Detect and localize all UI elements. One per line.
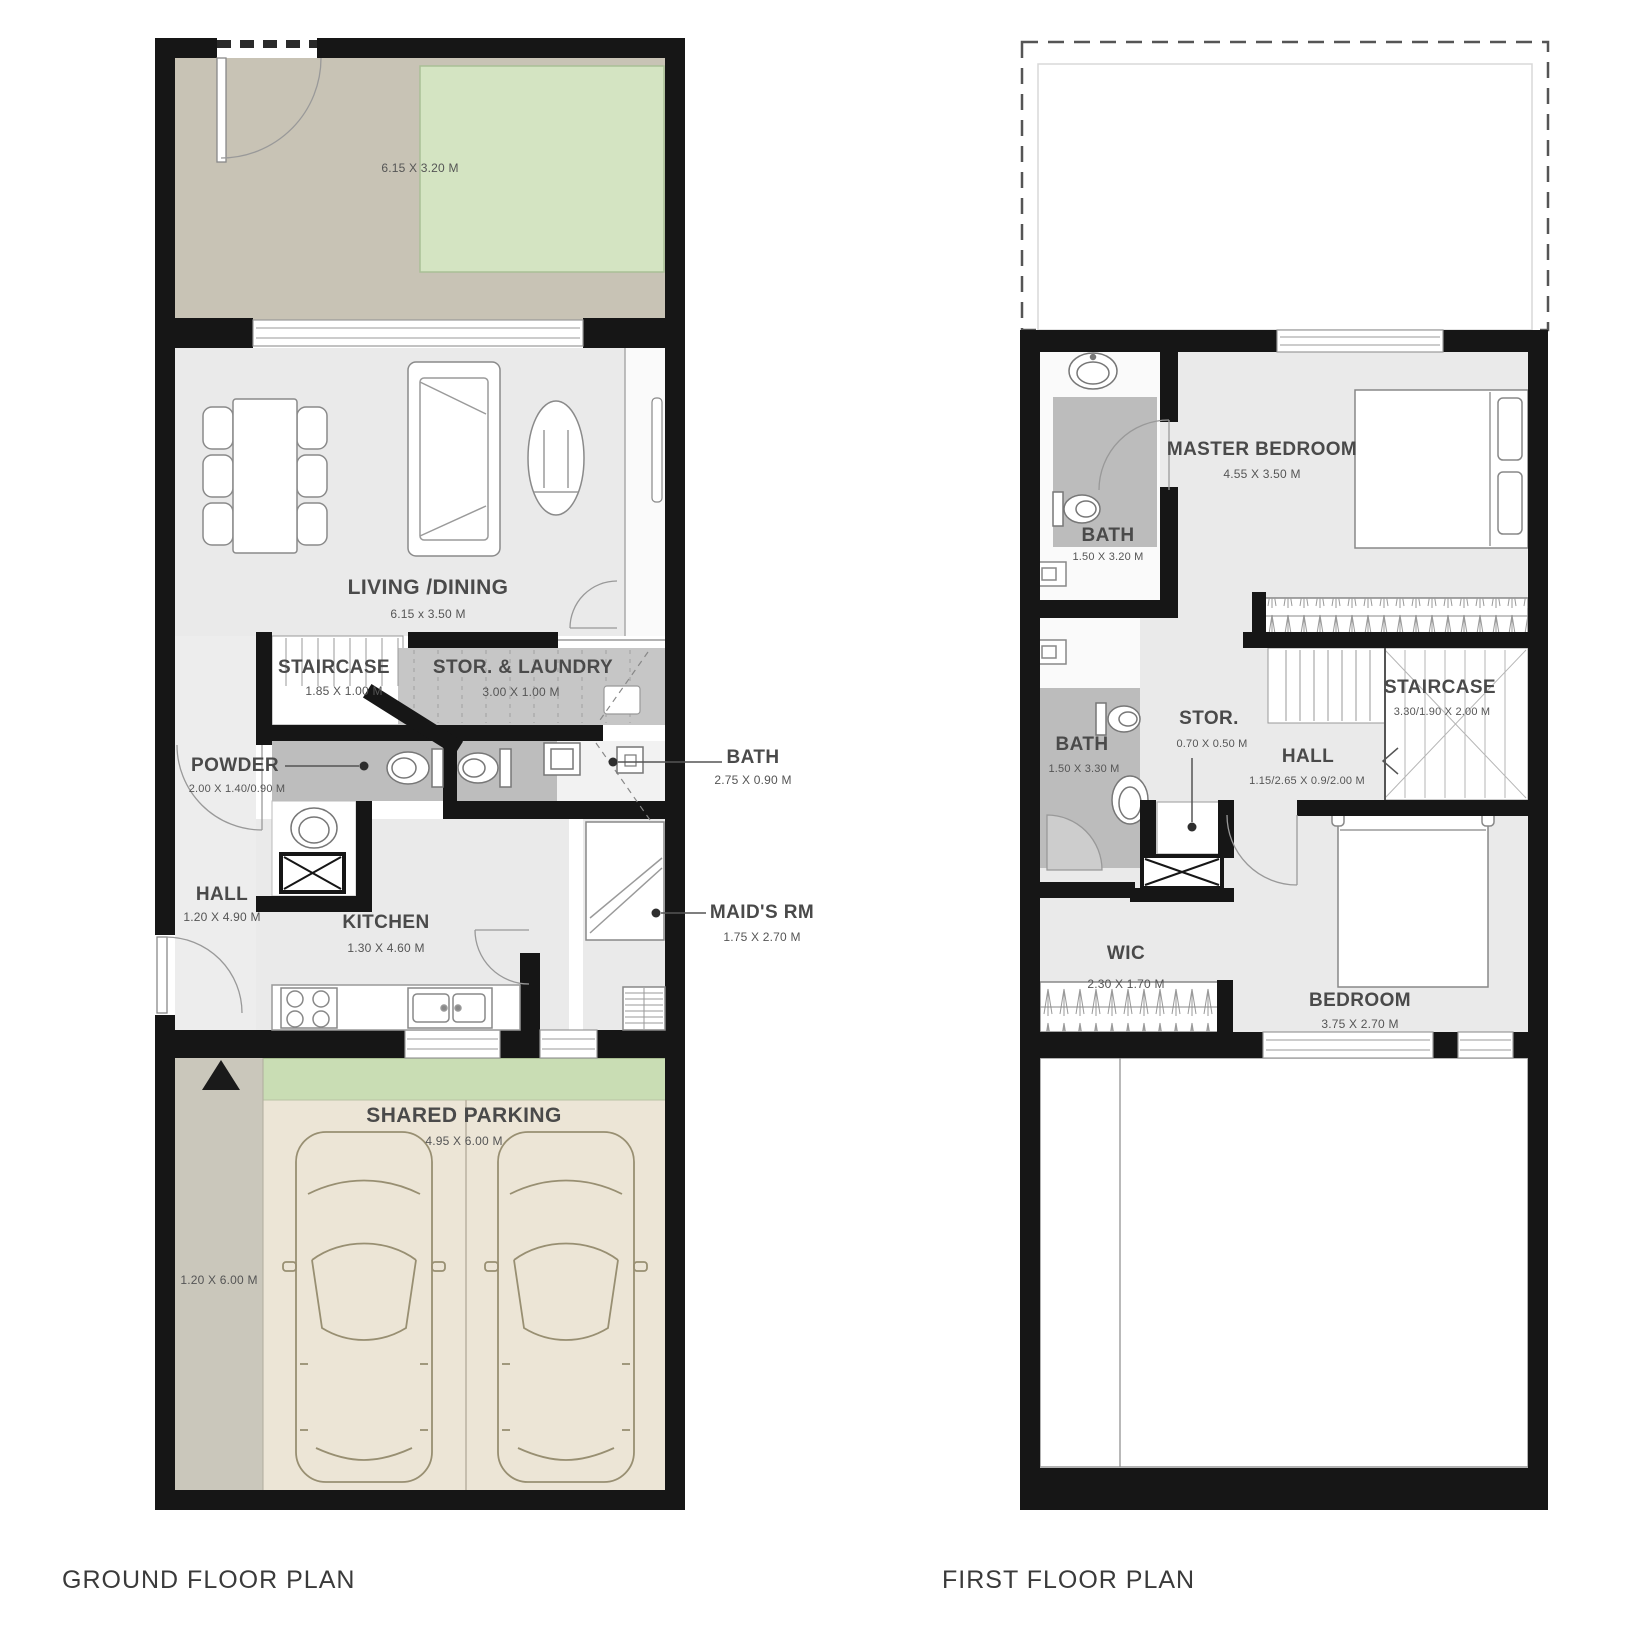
ff-bedroom-label: BEDROOM [1309, 990, 1411, 1012]
ff-storage-dims: 0.70 X 0.50 M [1176, 738, 1247, 750]
ff-wic-label: WIC [1107, 943, 1145, 965]
gf-powder-toilet [387, 749, 443, 787]
ff-hall-label: HALL [1282, 746, 1334, 768]
gf-dining-set [203, 399, 327, 553]
ff-staircase-dims: 3.30/1.90 X 2.00 M [1394, 706, 1491, 718]
gf-hall-dims: 1.20 X 4.90 M [183, 910, 260, 924]
gf-maid-bed [586, 822, 664, 940]
ff-roof-void [1040, 1058, 1528, 1467]
ff-bedroom-dims: 3.75 X 2.70 M [1321, 1017, 1398, 1031]
gf-kitchen-sink [408, 988, 492, 1028]
ff-master-label: MASTER BEDROOM [1167, 439, 1357, 461]
gf-bath-basin [544, 743, 580, 775]
gf-laundry-label: STOR. & LAUNDRY [433, 657, 613, 679]
gf-washer [604, 686, 640, 714]
gf-wash-basin [291, 808, 337, 848]
gf-maid-label: MAID'S RM [710, 902, 814, 924]
gf-staircase-dims: 1.85 X 1.00 M [305, 684, 382, 698]
ff-open-terrace-inner [1038, 64, 1532, 330]
floor-plan-sheet: 6.15 X 3.20 M LIVING /DINING 6.15 x 3.50… [0, 0, 1628, 1628]
gf-hall-floor [175, 636, 256, 1030]
ff-staircase-label: STAIRCASE [1384, 677, 1496, 699]
gf-stove [281, 988, 337, 1028]
gf-parking-dims: 4.95 X 6.00 M [425, 1134, 502, 1148]
gf-kitchen-label: KITCHEN [342, 912, 429, 934]
gf-kitchen-counter [272, 985, 520, 1030]
gf-bath-label: BATH [727, 747, 780, 769]
ff-bedroom-bed [1332, 810, 1494, 987]
ff-master-dims: 4.55 X 3.50 M [1223, 467, 1300, 481]
ff-master-bed [1355, 390, 1528, 548]
ff-master-closet [1258, 598, 1528, 634]
ff-bath-top-toilet [1053, 492, 1100, 526]
ff-bath-top-sink [1069, 353, 1117, 389]
ff-wic-dims: 2.30 X 1.70 M [1087, 977, 1164, 991]
gf-parking-floor [263, 1100, 665, 1490]
gf-staircase-area [272, 636, 403, 725]
gf-side-yard-dims: 1.20 X 6.00 M [180, 1273, 257, 1287]
floor-plan-drawing [0, 0, 1628, 1628]
gf-terrace-dims: 6.15 X 3.20 M [381, 161, 458, 175]
gf-shaft [281, 854, 344, 892]
gf-staircase-label: STAIRCASE [278, 657, 390, 679]
gf-armchair [528, 401, 584, 515]
gf-living-label: LIVING /DINING [348, 576, 509, 600]
gf-living-dims: 6.15 x 3.50 M [390, 607, 465, 621]
gf-laundry-dims: 3.00 X 1.00 M [482, 685, 559, 699]
gf-bath-dims: 2.75 X 0.90 M [714, 773, 791, 787]
gf-hall-label: HALL [196, 884, 248, 906]
ff-bath-top-label: BATH [1082, 525, 1135, 547]
gf-maid-wardrobe [623, 987, 665, 1030]
gf-sofa [408, 362, 500, 556]
gf-kitchen-dims: 1.30 X 4.60 M [347, 941, 424, 955]
gf-lawn-strip [263, 1058, 665, 1100]
ff-hall-dims: 1.15/2.65 X 0.9/2.00 M [1249, 775, 1365, 787]
ff-bath-top-dims: 1.50 X 3.20 M [1072, 551, 1143, 563]
ground-floor-title: GROUND FLOOR PLAN [62, 1566, 355, 1595]
gf-entry-panel [652, 398, 662, 502]
first-floor-title: FIRST FLOOR PLAN [942, 1566, 1195, 1595]
gf-parking-label: SHARED PARKING [366, 1104, 561, 1128]
ff-storage-label: STOR. [1179, 708, 1239, 730]
ff-bath-mid-dims: 1.50 X 3.30 M [1048, 763, 1119, 775]
ff-shaft [1142, 856, 1222, 888]
gf-powder-label: POWDER [191, 755, 279, 777]
gf-maid-dims: 1.75 X 2.70 M [723, 930, 800, 944]
gf-powder-dims: 2.00 X 1.40/0.90 M [189, 783, 286, 795]
ff-bath-mid-label: BATH [1056, 734, 1109, 756]
ff-bath-mid-toilet [1096, 703, 1140, 735]
